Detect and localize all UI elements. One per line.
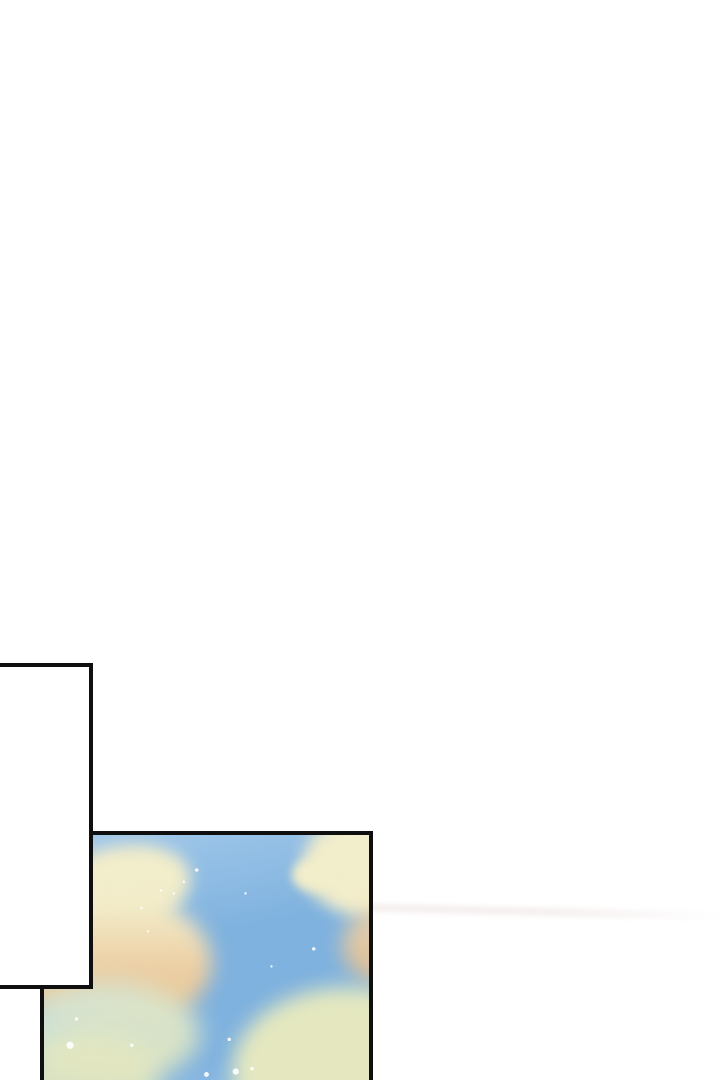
comic-page [0,0,720,1080]
blank-panel [0,663,93,989]
faint-horizon-streak [366,903,720,921]
